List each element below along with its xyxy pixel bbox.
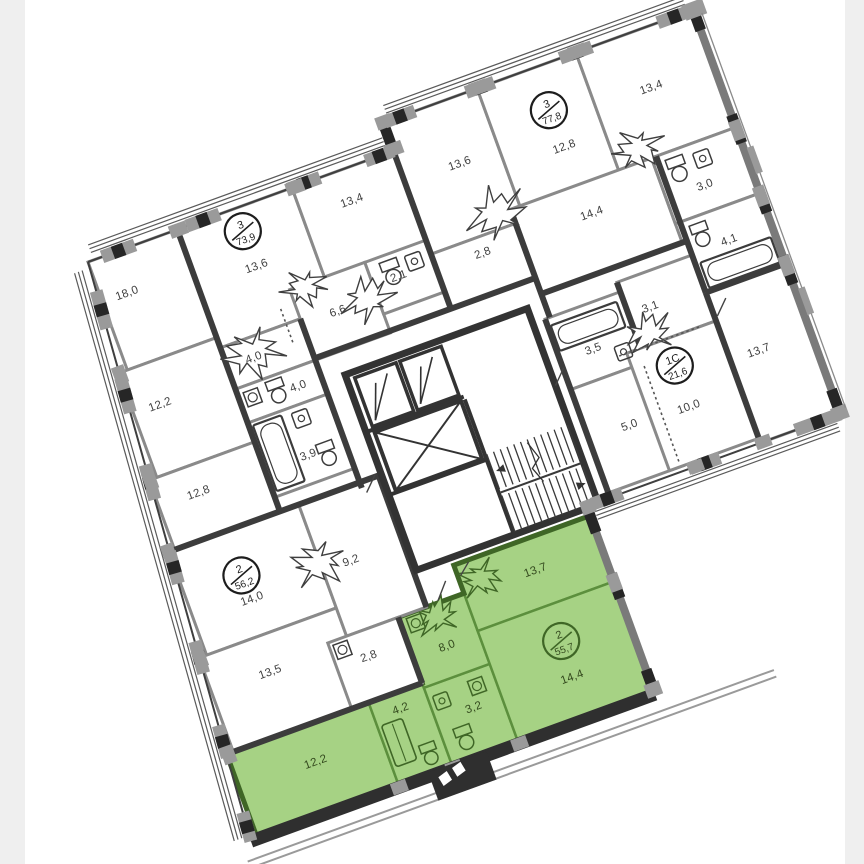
- facade-pier-dark: [669, 15, 680, 19]
- facade-pier-dark: [602, 497, 613, 501]
- floorplan-canvas: 255,712,24,23,28,013,714,4373,9377,8256,…: [0, 0, 864, 864]
- page-margin-left: [0, 0, 25, 864]
- facade-pier-dark: [197, 218, 208, 222]
- facade-pier-dark: [244, 821, 249, 833]
- facade-pier-dark: [123, 389, 128, 401]
- page-margin-right: [845, 0, 864, 864]
- facade-pier-dark: [99, 304, 104, 316]
- floor-plan-svg: 255,712,24,23,28,013,714,4373,9377,8256,…: [0, 0, 864, 864]
- facade-pier-dark: [812, 420, 823, 424]
- facade-pier-dark: [394, 114, 405, 118]
- facade-pier-dark: [113, 249, 124, 253]
- facade-pier-dark: [171, 562, 176, 574]
- facade-pier-dark: [220, 736, 225, 748]
- facade-pier-dark: [374, 154, 385, 158]
